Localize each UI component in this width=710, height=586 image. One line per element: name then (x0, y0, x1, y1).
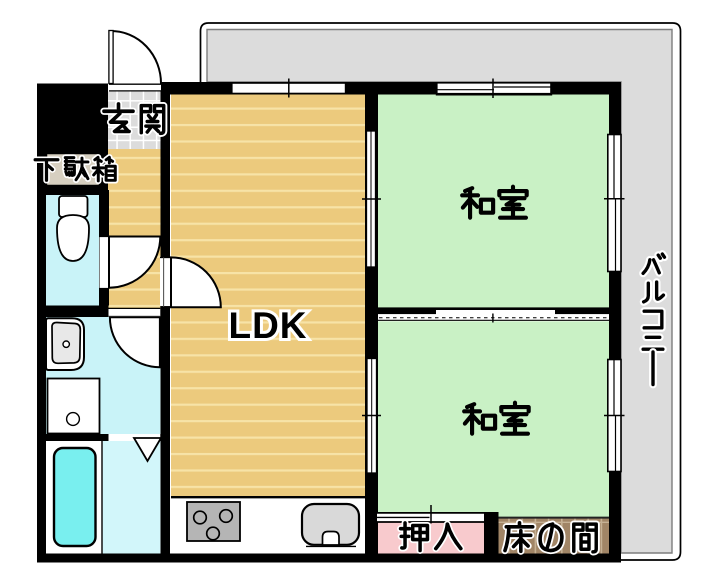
svg-text:LDK: LDK (228, 305, 307, 346)
